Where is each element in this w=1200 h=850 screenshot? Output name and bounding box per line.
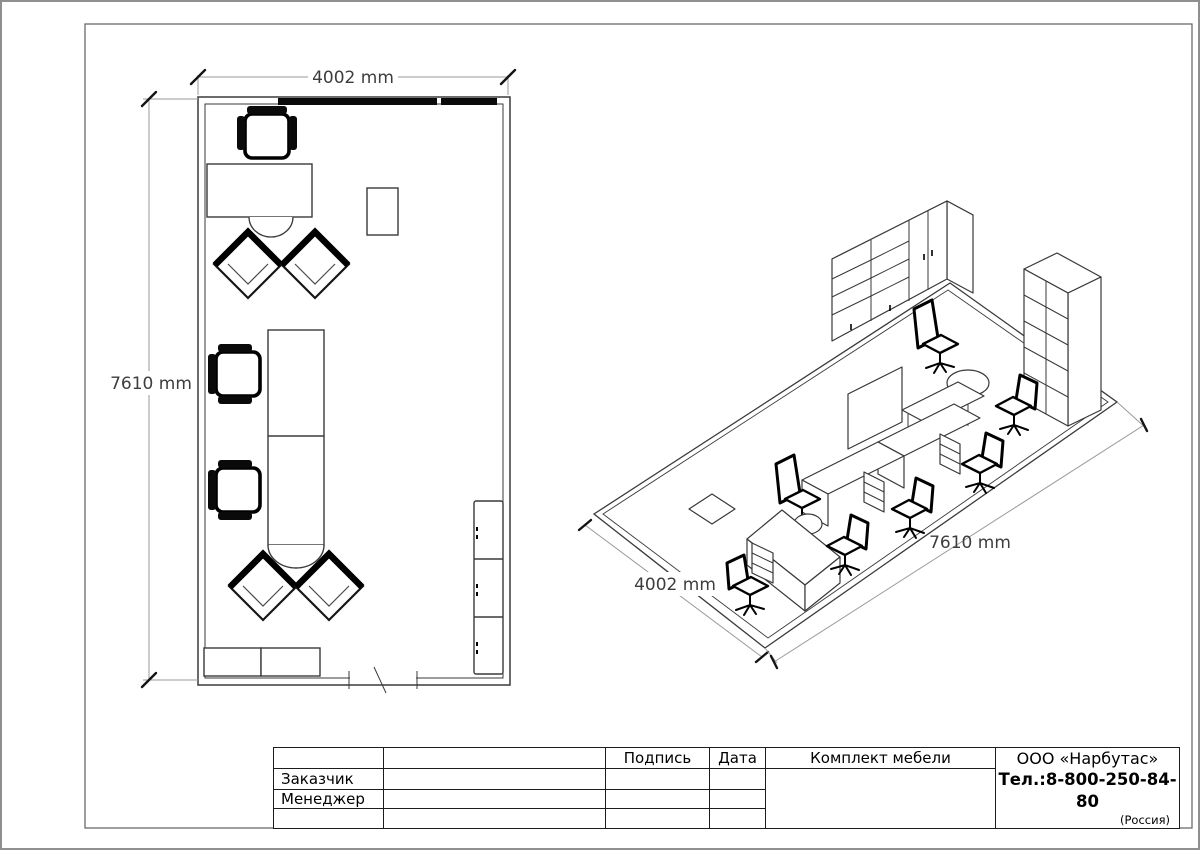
plan-width-label: 4002 mm xyxy=(312,68,394,88)
low-cabinet xyxy=(204,648,261,676)
plan-dim-height: 7610 mm xyxy=(106,92,198,687)
desk xyxy=(207,164,312,217)
guest-chair xyxy=(281,230,349,298)
title-block-cell xyxy=(273,808,384,829)
customer-label: Заказчик xyxy=(273,768,384,790)
office-chair xyxy=(208,460,260,520)
office-chair xyxy=(237,106,297,158)
title-block-cell xyxy=(273,747,384,769)
date-header: Дата xyxy=(709,747,766,769)
iso-length-label: 7610 mm xyxy=(929,533,1011,553)
manager-signature-cell xyxy=(605,789,710,809)
floor-plan: 4002 mm 7610 mm xyxy=(106,68,515,693)
title-block-cell xyxy=(605,808,710,829)
door-opening xyxy=(350,674,416,683)
double-desk xyxy=(268,330,324,545)
manager-label: Менеджер xyxy=(273,789,384,809)
title-block-cell xyxy=(383,808,606,829)
company-phone: Тел.:8-800-250-84-80 xyxy=(996,769,1179,813)
drawing-canvas: 4002 mm 7610 mm xyxy=(2,2,1200,850)
office-chair xyxy=(208,344,260,404)
customer-value-cell xyxy=(383,768,606,790)
customer-signature-cell xyxy=(605,768,710,790)
plan-dim-width: 4002 mm xyxy=(191,68,515,95)
side-table xyxy=(367,188,398,235)
furniture-set-header: Комплект мебели xyxy=(765,747,996,769)
signature-header: Подпись xyxy=(605,747,710,769)
title-block-cell xyxy=(709,808,766,829)
tall-cabinet xyxy=(474,501,503,674)
customer-date-cell xyxy=(709,768,766,790)
drawing-sheet: 4002 mm 7610 mm xyxy=(0,0,1200,850)
title-block-cell xyxy=(383,747,606,769)
company-info: ООО «Нарбутас» Тел.:8-800-250-84-80 (Рос… xyxy=(995,747,1180,829)
guest-chair xyxy=(214,230,282,298)
top-wall-panel xyxy=(278,98,437,105)
company-name: ООО «Нарбутас» xyxy=(996,748,1179,769)
low-cabinet xyxy=(261,648,320,676)
isometric-view: 4002 mm 7610 mm xyxy=(579,201,1147,668)
iso-width-label: 4002 mm xyxy=(634,575,716,595)
company-country: (Россия) xyxy=(996,813,1179,828)
chair-seat xyxy=(249,217,293,237)
plan-height-label: 7610 mm xyxy=(110,374,192,394)
top-wall-panel xyxy=(441,98,497,105)
manager-value-cell xyxy=(383,789,606,809)
manager-date-cell xyxy=(709,789,766,809)
plan-furniture xyxy=(204,106,503,676)
furniture-set-body xyxy=(765,768,996,829)
